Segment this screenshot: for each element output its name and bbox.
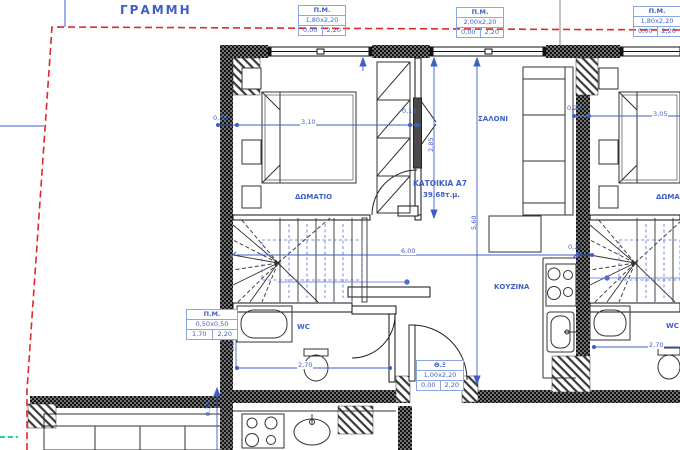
- opening-tag-entry-door: Θ.Ξ 1,00x2,20 0,00 2,20: [416, 360, 464, 391]
- nightstands-left: [242, 68, 261, 208]
- opening-tag-height: 2,20: [440, 381, 464, 390]
- room-label-bedroom-left: ΔΩΜΑΤΙΟ: [295, 193, 332, 201]
- interior-walls: [233, 58, 680, 382]
- opening-tag-sill: 0,00: [457, 28, 480, 37]
- opening-tag-sill: 0,00: [634, 27, 657, 36]
- opening-tag-header: Θ.Ξ: [417, 361, 463, 371]
- toilet-right: [658, 348, 680, 379]
- dim-bedroom-depth: 2,85: [427, 138, 435, 152]
- floorplan-linework: [0, 0, 680, 450]
- wardrobe: [377, 62, 410, 213]
- opening-tag-height: 2,20: [322, 26, 346, 35]
- opening-tag-header: Π.Μ.: [187, 310, 237, 320]
- dim-lower-offset: 0,30: [204, 402, 212, 416]
- unit-area-label: 39,68τ.μ.: [423, 191, 460, 199]
- kitchen-sink: [547, 312, 576, 352]
- unit-name-label: ΚΑΤΟΙΚΙΑ Α7: [413, 179, 467, 188]
- dim-bed-span: 3,10: [300, 118, 316, 126]
- sofa: [523, 67, 573, 215]
- opening-tag-size: 0,50x0,50: [187, 320, 237, 330]
- opening-tag-sill: 0,00: [417, 381, 440, 390]
- room-label-wc-left: WC: [297, 323, 310, 331]
- dim-stair-offset: 0,20: [568, 243, 582, 251]
- staircase-right: [590, 218, 680, 302]
- nightstands-right: [599, 68, 618, 208]
- opening-tag-header: Π.Μ.: [634, 7, 680, 17]
- sofa-lower: [44, 414, 228, 450]
- cooktop: [546, 264, 576, 306]
- opening-tag-wc-window: Π.Μ. 0,50x0,50 1,70 2,20: [186, 309, 238, 340]
- dim-partition: 0,10: [402, 107, 416, 115]
- bed-right: [619, 92, 680, 183]
- staircase-left: [233, 218, 367, 302]
- window-3: [620, 46, 680, 58]
- opening-tag-window-2: Π.Μ. 2,00x2,20 0,00 2,20: [456, 7, 504, 38]
- opening-tag-size: 1,80x2,20: [634, 17, 680, 27]
- room-label-living: ΣΑΛΟΝΙ: [478, 115, 508, 123]
- room-label-wc-right: WC: [666, 322, 679, 330]
- opening-tag-size: 1,80x2,20: [299, 16, 345, 26]
- dim-wc-width-right: 2,70: [648, 341, 664, 349]
- bed-left: [262, 92, 356, 183]
- opening-tag-header: Π.Μ.: [457, 8, 503, 18]
- window-1: [268, 46, 372, 58]
- window-2: [430, 46, 546, 58]
- dim-living-depth: 5,60: [470, 216, 478, 230]
- opening-tag-height: 2,20: [657, 27, 680, 36]
- floorplan-page: ΓΡΑΜΜΗ ΔΩΜΑΤΙΟ ΔΩΜΑΤΙΟ ΣΑΛΟΝΙ ΚΟΥΖΙΝΑ WC…: [0, 0, 680, 450]
- opening-tag-header: Π.Μ.: [299, 6, 345, 16]
- opening-tag-sill: 1,70: [187, 330, 212, 339]
- opening-tag-height: 2,20: [480, 28, 504, 37]
- opening-tag-sill: 0,00: [299, 26, 322, 35]
- opening-tag-height: 2,20: [212, 330, 238, 339]
- room-label-bedroom-right: ΔΩΜΑΤΙΟ: [656, 193, 680, 201]
- dim-unit-width: 6,00: [400, 247, 416, 255]
- room-label-kitchen: ΚΟΥΖΙΝΑ: [494, 283, 529, 291]
- opening-tag-window-1: Π.Μ. 1,80x2,20 0,00 2,20: [298, 5, 346, 36]
- dim-right-offset: 0,20: [567, 104, 581, 112]
- construction-lines: [0, 0, 65, 126]
- dim-bed-span-right: 3,05: [652, 110, 668, 118]
- opening-tag-window-3: Π.Μ. 1,80x2,20 0,00 2,20: [633, 6, 680, 37]
- coffee-table: [489, 216, 541, 252]
- opening-tag-size: 2,00x2,20: [457, 18, 503, 28]
- opening-tag-size: 1,00x2,20: [417, 371, 463, 381]
- dim-left-wall: 0,30: [213, 114, 227, 122]
- staircase-right-overlay: [590, 224, 680, 298]
- dim-wc-width: 2,70: [297, 361, 313, 369]
- boundary-label: ΓΡΑΜΜΗ: [120, 3, 192, 17]
